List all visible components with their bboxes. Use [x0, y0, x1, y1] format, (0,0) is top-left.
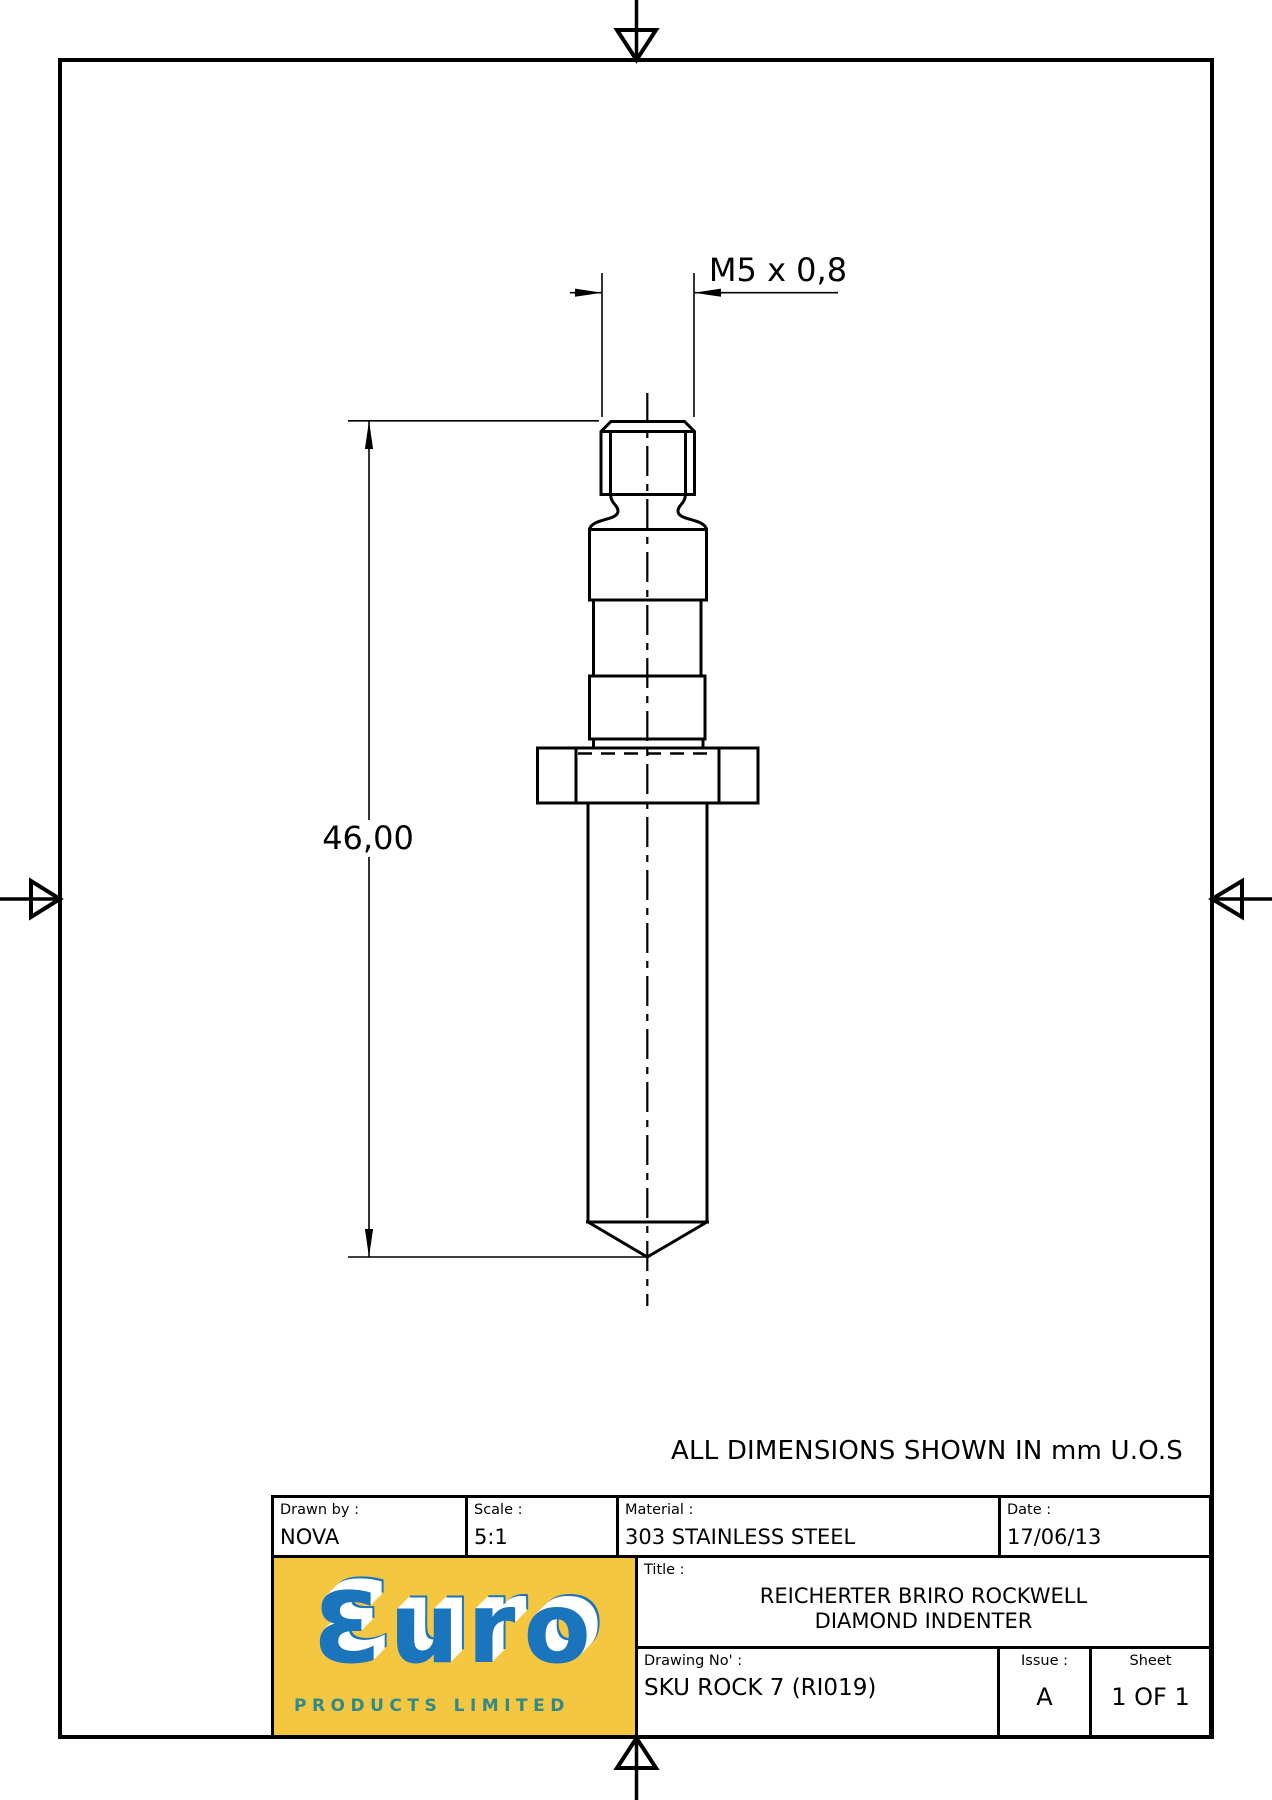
- issue-value: A: [1000, 1669, 1089, 1711]
- drawing-number-value: SKU ROCK 7 (RI019): [638, 1669, 997, 1701]
- title-label: Title :: [638, 1558, 1209, 1578]
- date-label: Date :: [1001, 1498, 1209, 1518]
- material-cell: Material : 303 STAINLESS STEEL: [619, 1498, 1001, 1558]
- issue-cell: Issue : A: [1000, 1649, 1092, 1735]
- title-cell: Title : REICHERTER BRIRO ROCKWELL DIAMON…: [638, 1558, 1209, 1649]
- drawing-number-label: Drawing No' :: [638, 1649, 997, 1669]
- neck-profile-left: [590, 495, 619, 530]
- company-logo: Ɛuro PRODUCTS LIMITED: [274, 1558, 638, 1735]
- centering-mark-bottom: [617, 1738, 656, 1800]
- material-value: 303 STAINLESS STEEL: [619, 1518, 998, 1549]
- dimension-overall-length: 46,00: [322, 421, 646, 1257]
- sheet-border: [60, 60, 1212, 1737]
- scale-cell: Scale : 5:1: [468, 1498, 619, 1558]
- sheet-cell: Sheet 1 OF 1: [1092, 1649, 1209, 1735]
- sheet-label: Sheet: [1092, 1649, 1209, 1669]
- drawing-sheet: M5 x 0,8 46,00 ALL DIMENSIONS SHOWN IN m…: [0, 0, 1272, 1800]
- sheet-value: 1 OF 1: [1092, 1669, 1209, 1711]
- drawing-title-line2: DIAMOND INDENTER: [638, 1609, 1209, 1634]
- length-dimension-label: 46,00: [322, 819, 414, 857]
- drawn-by-label: Drawn by :: [274, 1498, 465, 1518]
- centering-mark-top: [617, 0, 656, 60]
- neck-profile-right: [678, 495, 707, 530]
- drawing-title: REICHERTER BRIRO ROCKWELL DIAMOND INDENT…: [638, 1584, 1209, 1634]
- issue-label: Issue :: [1000, 1649, 1089, 1669]
- arrowhead: [365, 421, 373, 449]
- thread-dimension-label: M5 x 0,8: [709, 251, 847, 289]
- euro-logo-wordmark: Ɛuro: [286, 1580, 626, 1678]
- date-value: 17/06/13: [1001, 1518, 1209, 1549]
- dimensions-note: ALL DIMENSIONS SHOWN IN mm U.O.S: [671, 1436, 1183, 1466]
- arrowhead: [575, 289, 602, 297]
- material-label: Material :: [619, 1498, 998, 1518]
- scale-value: 5:1: [468, 1518, 616, 1549]
- scale-label: Scale :: [468, 1498, 616, 1518]
- centering-mark-left: [0, 881, 60, 917]
- euro-logo-tagline: PRODUCTS LIMITED: [294, 1696, 570, 1716]
- drawn-by-value: NOVA: [274, 1518, 465, 1549]
- dimension-thread: M5 x 0,8: [570, 251, 847, 417]
- arrowhead: [694, 289, 721, 297]
- date-cell: Date : 17/06/13: [1001, 1498, 1209, 1558]
- centering-mark-right: [1212, 881, 1272, 917]
- drawing-title-line1: REICHERTER BRIRO ROCKWELL: [638, 1584, 1209, 1609]
- drawn-by-cell: Drawn by : NOVA: [274, 1498, 468, 1558]
- drawing-number-cell: Drawing No' : SKU ROCK 7 (RI019): [638, 1649, 1000, 1735]
- arrowhead: [365, 1229, 373, 1257]
- title-block: Drawn by : NOVA Scale : 5:1 Material : 3…: [271, 1495, 1212, 1738]
